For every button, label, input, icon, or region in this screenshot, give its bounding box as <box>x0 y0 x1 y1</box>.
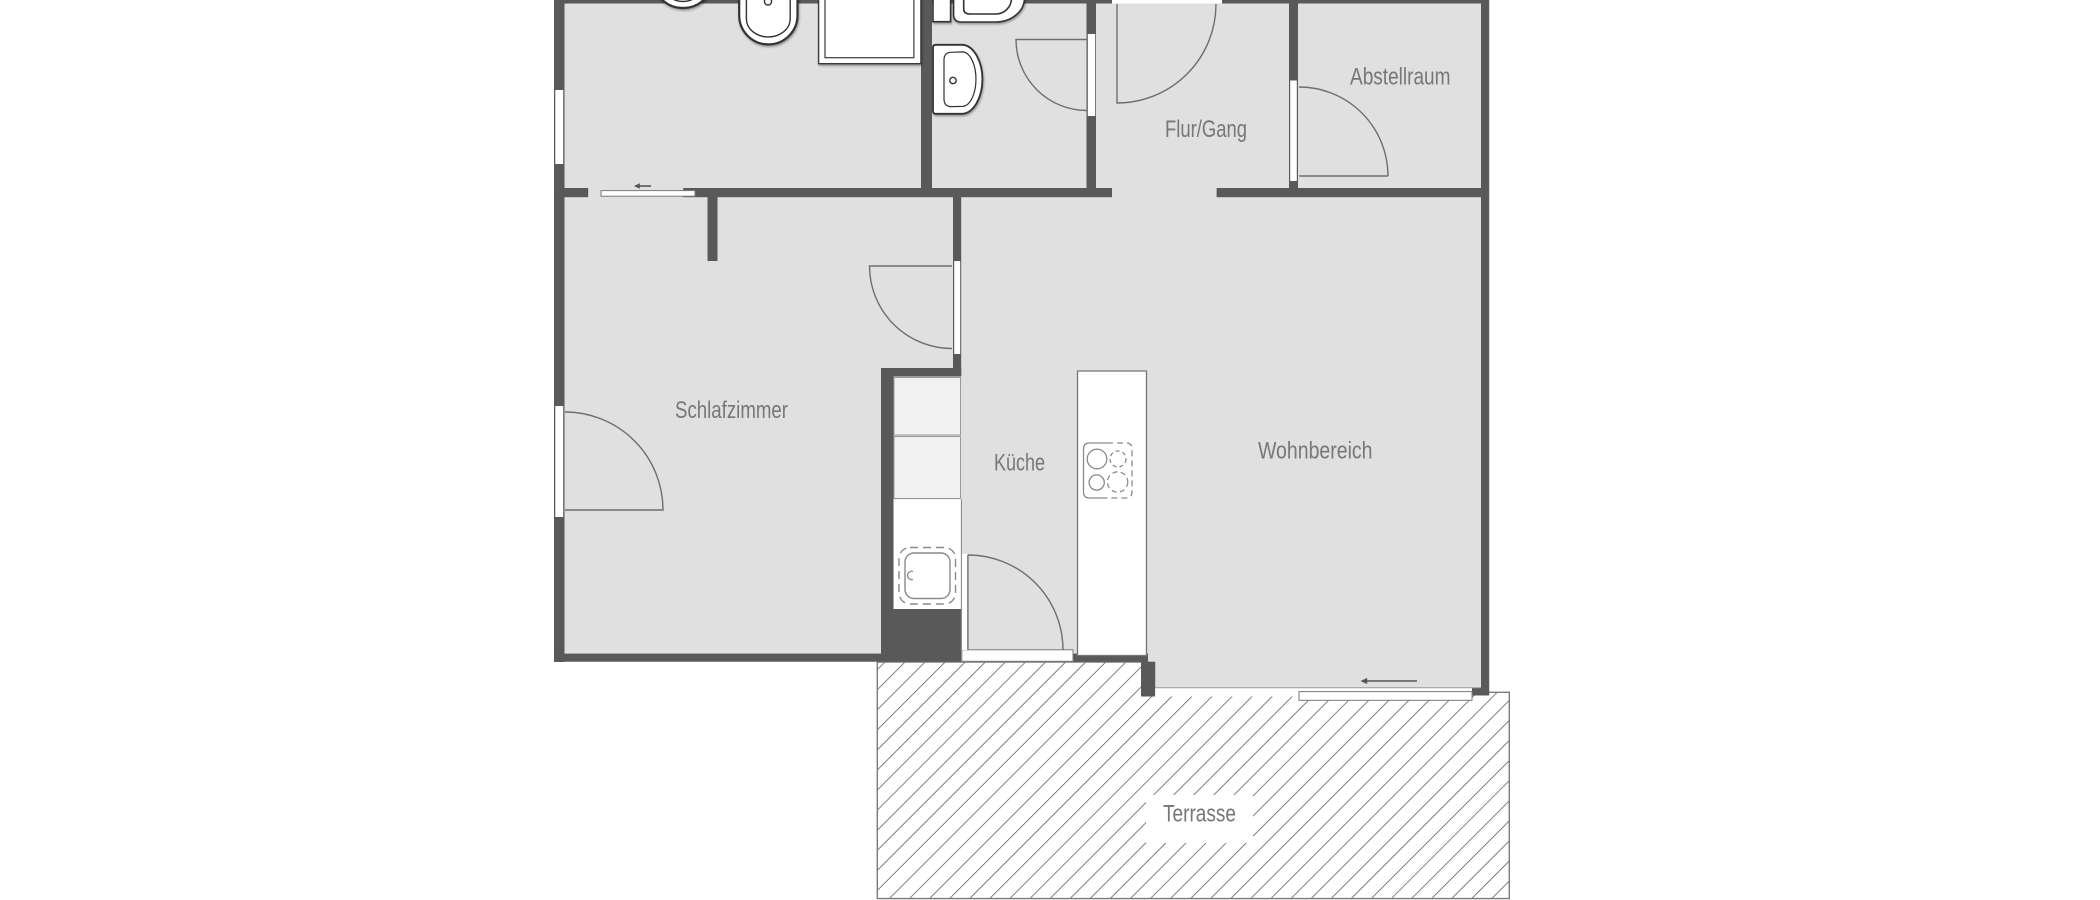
svg-text:Wohnbereich: Wohnbereich <box>1258 438 1373 465</box>
svg-text:Schlafzimmer: Schlafzimmer <box>675 397 788 424</box>
svg-text:Flur/Gang: Flur/Gang <box>1165 116 1247 143</box>
svg-text:Abstellraum: Abstellraum <box>1350 64 1451 91</box>
svg-text:Terrasse: Terrasse <box>1163 801 1236 828</box>
svg-text:Küche: Küche <box>994 450 1045 477</box>
